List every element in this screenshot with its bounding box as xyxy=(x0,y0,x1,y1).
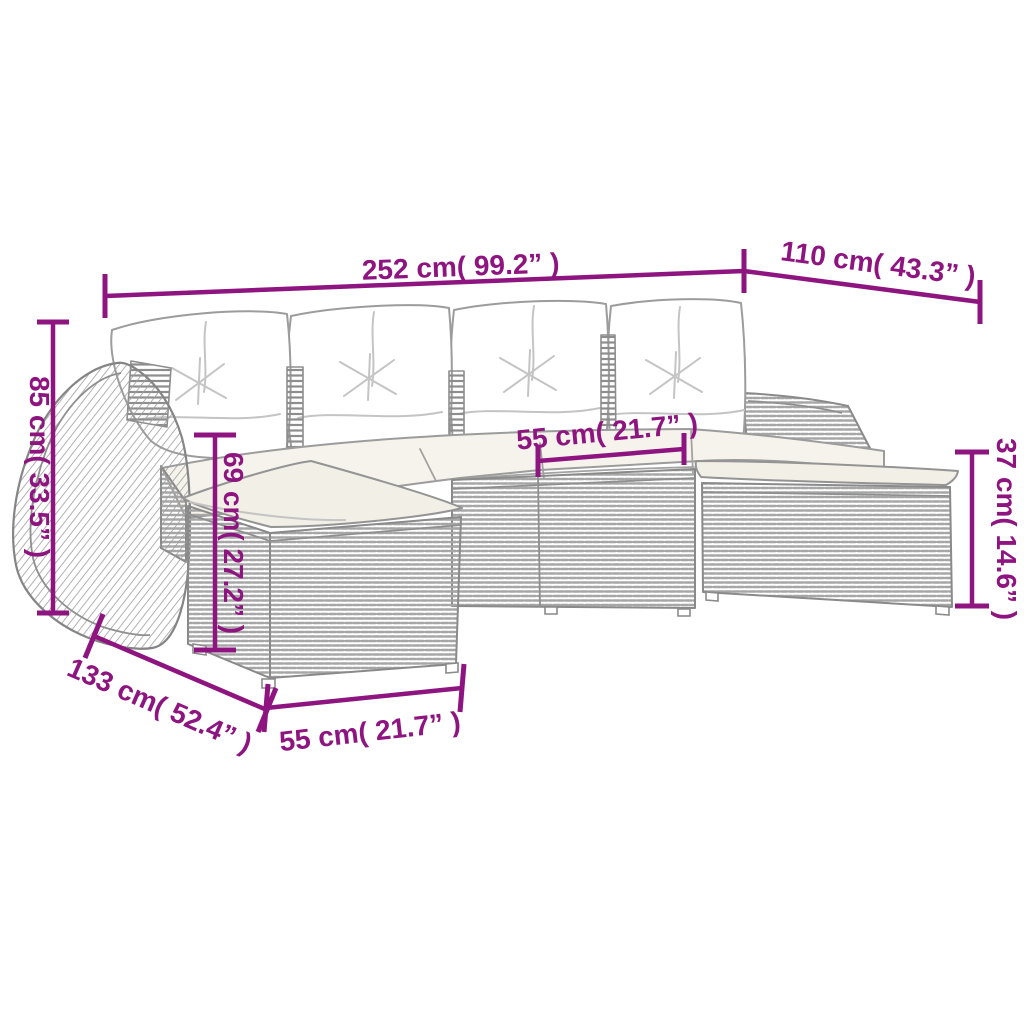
product-dimension-diagram-page: 252 cm( 99.2” ) 110 cm( 43.3” ) 85 cm( 3… xyxy=(0,0,1024,1024)
center-base-panel xyxy=(452,469,695,608)
back-post-1-2 xyxy=(287,367,303,453)
dimension-label: 55 cm( 21.7” ) xyxy=(278,706,462,757)
dimension-label: 133 cm( 52.4” ) xyxy=(63,652,257,759)
right-ottoman-front-face xyxy=(702,483,952,607)
left-ottoman-front-face xyxy=(270,517,461,678)
rattan-sofa-set-dimension-diagram: 252 cm( 99.2” ) 110 cm( 43.3” ) 85 cm( 3… xyxy=(0,0,1024,1024)
dimension-label: 37 cm( 14.6” ) xyxy=(991,438,1022,620)
dimension-label: 110 cm( 43.3” ) xyxy=(779,235,978,292)
right-ottoman-cushion xyxy=(696,461,958,485)
dimension-label: 69 cm( 27.2” ) xyxy=(218,452,249,634)
dimension-label: 85 cm( 33.5” ) xyxy=(24,376,55,558)
dimension-ottoman-height: 37 cm( 14.6” ) xyxy=(955,438,1022,620)
sofa-illustration xyxy=(13,299,958,688)
dimension-ottoman-width: 55 cm( 21.7” ) xyxy=(264,664,464,757)
dimension-line xyxy=(266,688,462,708)
dimension-right-depth: 110 cm( 43.3” ) xyxy=(744,235,980,324)
